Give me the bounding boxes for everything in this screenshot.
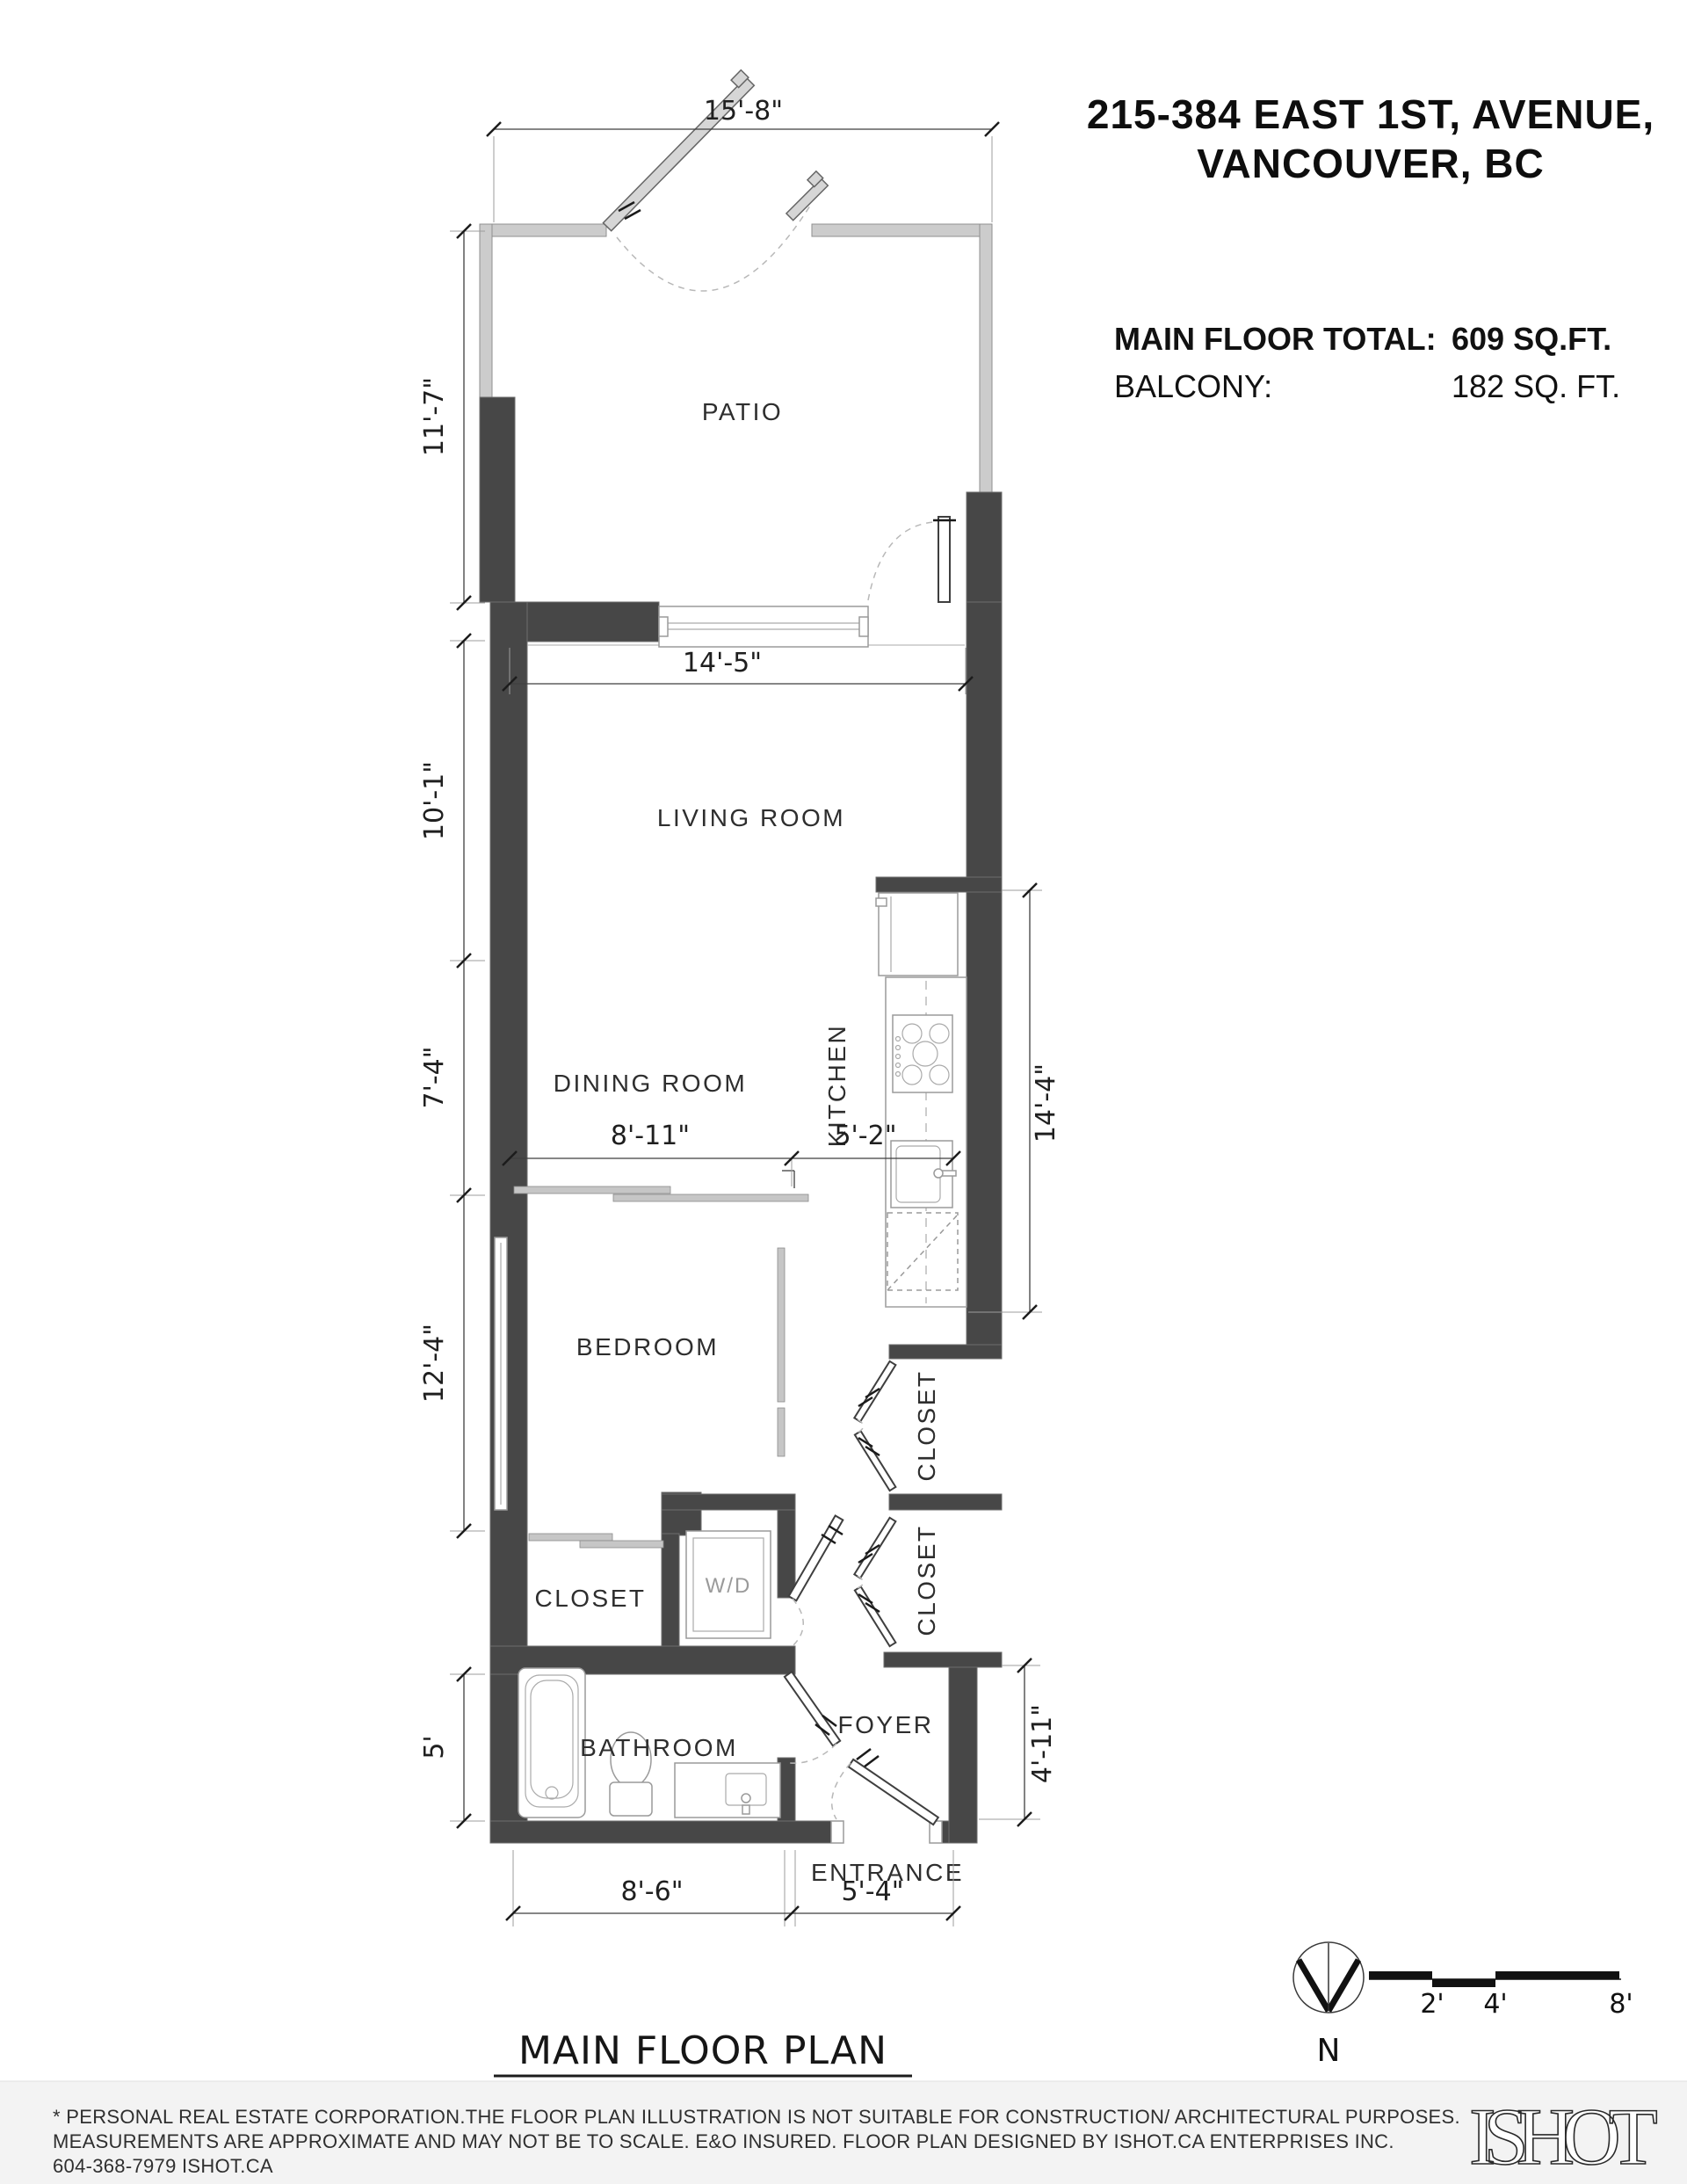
bedroom-closet-label: CLOSET	[534, 1585, 646, 1612]
living-room-label: LIVING ROOM	[657, 804, 845, 831]
kitchen-wall-stub	[876, 877, 1002, 892]
bottom-wall-left	[490, 1821, 831, 1843]
svg-text:5': 5'	[419, 1735, 450, 1759]
svg-text:4'-11": 4'-11"	[1027, 1704, 1058, 1783]
disclaimer-line3: 604-368-7979 ISHOT.CA	[53, 2155, 273, 2177]
fridge-icon	[876, 893, 958, 976]
bedroom-window-icon	[495, 1237, 507, 1510]
patio-wall-right	[967, 492, 1002, 602]
floor-plan-canvas: 215-384 EAST 1ST, AVENUE, VANCOUVER, BC …	[0, 0, 1687, 2184]
north-compass-icon: N	[1293, 1942, 1364, 2069]
disclaimer-line2: MEASUREMENTS ARE APPROXIMATE AND MAY NOT…	[53, 2130, 1394, 2152]
bedroom-closet-wd: CLOSET W/D	[490, 1492, 795, 1674]
dim-living-width: 14'-5"	[503, 648, 973, 694]
bathtub-icon	[518, 1668, 585, 1818]
svg-text:15'-8": 15'-8"	[704, 96, 783, 127]
closet-lower-label: CLOSET	[913, 1524, 940, 1636]
patio-door-arc	[868, 522, 933, 600]
closet-slider-1	[529, 1534, 612, 1541]
bedroom-label: BEDROOM	[576, 1333, 719, 1360]
right-wall-upper	[967, 602, 1002, 1358]
dim-left-column: 11'-7" 10'-1" 7'-4" 12'-4" 5'	[419, 224, 485, 1828]
svg-text:14'-5": 14'-5"	[683, 648, 762, 678]
bathroom-door-icon	[785, 1672, 840, 1745]
bedroom-door-arc	[793, 1599, 803, 1645]
wd-label: W/D	[706, 1574, 752, 1598]
entrance-door-icon	[849, 1760, 938, 1825]
scale-4ft: 4'	[1483, 1989, 1507, 2020]
footer-band: * PERSONAL REAL ESTATE CORPORATION.THE F…	[0, 2081, 1687, 2184]
address-line2: VANCOUVER, BC	[1197, 141, 1545, 186]
closet-wd-divider	[662, 1534, 679, 1646]
plan-title: MAIN FLOOR PLAN	[518, 2028, 887, 2073]
closet-slider-2	[580, 1541, 663, 1548]
sliding-partition	[514, 1171, 808, 1456]
svg-text:5'-4": 5'-4"	[841, 1876, 903, 1907]
patio-fence-right	[980, 224, 992, 492]
closet2-bottom-wall	[884, 1652, 1002, 1667]
svg-text:5'-2": 5'-2"	[834, 1121, 896, 1151]
bathroom-label: BATHROOM	[580, 1734, 738, 1761]
patio-label: PATIO	[702, 398, 783, 425]
patio-gate-leaf-icon	[780, 171, 829, 221]
closet1-top-wall	[889, 1345, 1002, 1359]
svg-text:8'-11": 8'-11"	[611, 1121, 690, 1151]
dim-foyer-depth: 4'-11"	[979, 1658, 1058, 1826]
right-wall-lower	[949, 1667, 977, 1843]
header-block: 215-384 EAST 1ST, AVENUE, VANCOUVER, BC …	[1087, 91, 1654, 404]
scale-8ft: 8'	[1609, 1989, 1633, 2020]
floor-plan-page: 215-384 EAST 1ST, AVENUE, VANCOUVER, BC …	[0, 0, 1687, 2184]
entrance-jamb-left	[831, 1821, 843, 1843]
patio-gate-door-icon	[597, 70, 755, 231]
dim-patio-width: 15'-8"	[487, 96, 999, 222]
foyer-closets: CLOSET CLOSET	[854, 1345, 1002, 1667]
dining-room-label: DINING ROOM	[554, 1070, 747, 1097]
svg-text:7'-4": 7'-4"	[419, 1046, 450, 1108]
vanity-sink-icon	[675, 1763, 780, 1818]
svg-text:8'-6": 8'-6"	[620, 1876, 683, 1907]
svg-text:11'-7": 11'-7"	[419, 377, 450, 456]
address-line1: 215-384 EAST 1ST, AVENUE,	[1087, 91, 1654, 137]
stat-main-floor-value: 609 SQ.FT.	[1452, 321, 1611, 357]
scale-2ft: 2'	[1420, 1989, 1444, 2020]
entrance-door-arc	[832, 1763, 851, 1819]
gate-swing-arc	[617, 206, 810, 291]
patio-fence-left	[480, 224, 492, 397]
wd-top-wall	[662, 1494, 795, 1510]
patio-fence-top-left	[480, 224, 606, 236]
closet-divider-wall	[889, 1494, 1002, 1510]
svg-text:10'-1": 10'-1"	[419, 761, 450, 840]
stat-balcony-value: 182 SQ. FT.	[1452, 368, 1620, 404]
stat-balcony-label: BALCONY:	[1114, 368, 1272, 404]
closet-upper-label: CLOSET	[913, 1369, 940, 1481]
stove-icon	[893, 1015, 952, 1092]
north-label: N	[1317, 2033, 1341, 2069]
bathroom-door-arc	[790, 1744, 836, 1763]
patio-wall-left	[480, 397, 515, 602]
ishot-logo: ISHOT	[1469, 2092, 1657, 2181]
svg-text:12'-4": 12'-4"	[419, 1324, 450, 1403]
wd-right-wall	[778, 1510, 795, 1598]
scale-bar: 2' 4' 8'	[1369, 1971, 1633, 2020]
patio-door-icon	[938, 517, 950, 602]
foyer-label: FOYER	[838, 1711, 934, 1738]
living-room-window-icon	[659, 606, 868, 647]
bathroom: BATHROOM	[518, 1668, 795, 1821]
svg-text:14'-4": 14'-4"	[1031, 1063, 1061, 1143]
disclaimer-line1: * PERSONAL REAL ESTATE CORPORATION.THE F…	[53, 2106, 1460, 2128]
stat-main-floor-label: MAIN FLOOR TOTAL:	[1114, 321, 1437, 357]
patio: PATIO	[480, 70, 1002, 602]
patio-fence-top-right	[812, 224, 992, 236]
kitchen-sink-icon	[891, 1141, 956, 1208]
